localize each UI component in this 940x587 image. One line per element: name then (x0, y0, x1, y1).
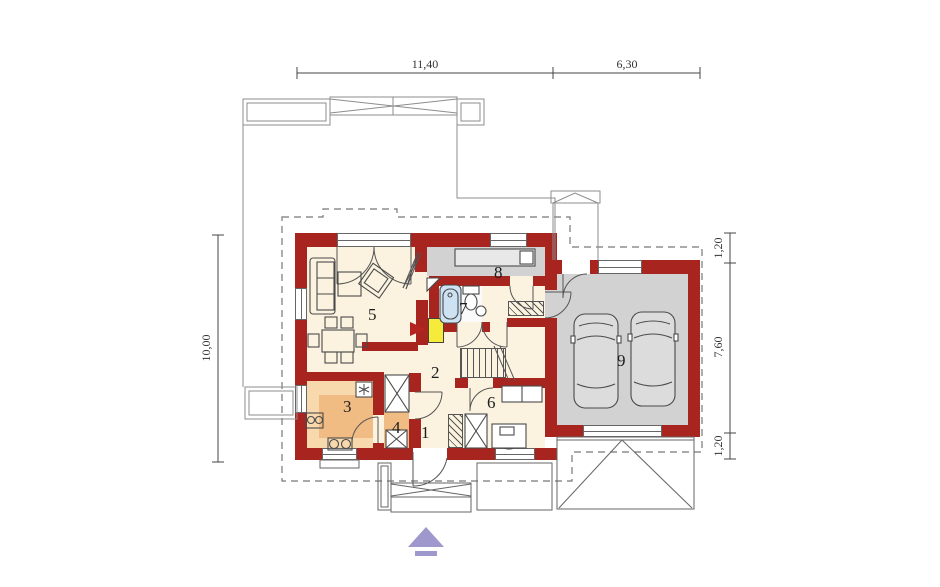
wall-hall1-lower (409, 419, 421, 448)
room-label-pantry: 4 (392, 419, 401, 436)
dim-right-2: 7,60 (712, 323, 724, 371)
chimney (551, 191, 600, 203)
wall-kitchen-right-1 (373, 372, 384, 415)
dim-right-1: 1,20 (712, 224, 724, 272)
room-label-utility: 8 (494, 264, 503, 281)
floor-utility-room (427, 247, 545, 276)
entry-steps (391, 483, 471, 512)
driveway (557, 437, 694, 509)
wall-hall1-upper (409, 373, 421, 392)
garage-wall-bottom-2 (662, 425, 700, 437)
dim-top-2: 6,30 (603, 58, 651, 70)
stairs (460, 348, 506, 378)
window-office-bottom (495, 448, 535, 460)
fireplace-arrow-icon (410, 322, 426, 336)
window-living-left (295, 288, 307, 320)
room-label-office: 6 (487, 394, 496, 411)
room-label-kitchen: 3 (343, 398, 352, 415)
dim-top-1: 11,40 (401, 58, 449, 70)
kitchen-window-sill (320, 460, 359, 468)
window-utility (490, 233, 527, 247)
garage-door-opening (583, 425, 662, 437)
porch-slab (477, 463, 552, 510)
window-garage (598, 260, 642, 274)
french-door-living (337, 233, 411, 247)
floor-plan-canvas: 11,40 6,30 10,00 1,20 7,60 1,20 (0, 0, 940, 587)
wall-bottom-2 (357, 448, 413, 460)
wall-left-2 (295, 320, 307, 385)
garage-wall-top-1 (557, 260, 562, 274)
wall-living-hall-top (415, 247, 427, 272)
wall-stairs-2 (493, 378, 545, 388)
garage-wall-top-2 (590, 260, 598, 274)
floor-garage (557, 274, 688, 425)
wall-utility-bottom-2 (533, 276, 545, 286)
wall-top-1 (295, 233, 337, 247)
room-label-hall: 2 (431, 364, 440, 381)
radiator-grate-corridor (508, 301, 544, 316)
window-kitchen-left (295, 385, 307, 413)
wall-top-3 (435, 233, 490, 247)
wall-bottom-1 (295, 448, 322, 460)
dim-left-1: 10,00 (200, 324, 212, 372)
room-label-living-room: 5 (368, 306, 377, 323)
fireplace-icon (428, 318, 444, 343)
room-label-entrance-hall: 1 (421, 424, 430, 441)
wall-bath-bottom-2 (482, 322, 490, 332)
garage-wall-right (688, 260, 700, 437)
wall-kitchen-top (307, 372, 373, 381)
dim-right-3: 1,20 (712, 422, 724, 470)
room-label-bathroom: 7 (459, 300, 468, 317)
wall-stairs-1 (455, 378, 468, 388)
wall-bottom-4 (535, 448, 557, 460)
north-arrow-icon (408, 527, 444, 547)
wall-right-upper (545, 233, 557, 290)
wall-corridor-bottom (507, 318, 545, 327)
window-kitchen-bottom (322, 448, 357, 460)
wall-top-2 (411, 233, 435, 247)
wall-kitchen-right-2 (373, 443, 384, 460)
wall-hall-horizontal (362, 342, 418, 351)
wall-bottom-3 (447, 448, 495, 460)
garage-wall-bottom-1 (557, 425, 583, 437)
room-label-garage: 9 (617, 352, 626, 369)
radiator-hall (448, 414, 463, 448)
wall-right-lower (545, 318, 557, 437)
floor-vestibule-passage (545, 290, 557, 318)
north-arrow-base (415, 551, 437, 556)
